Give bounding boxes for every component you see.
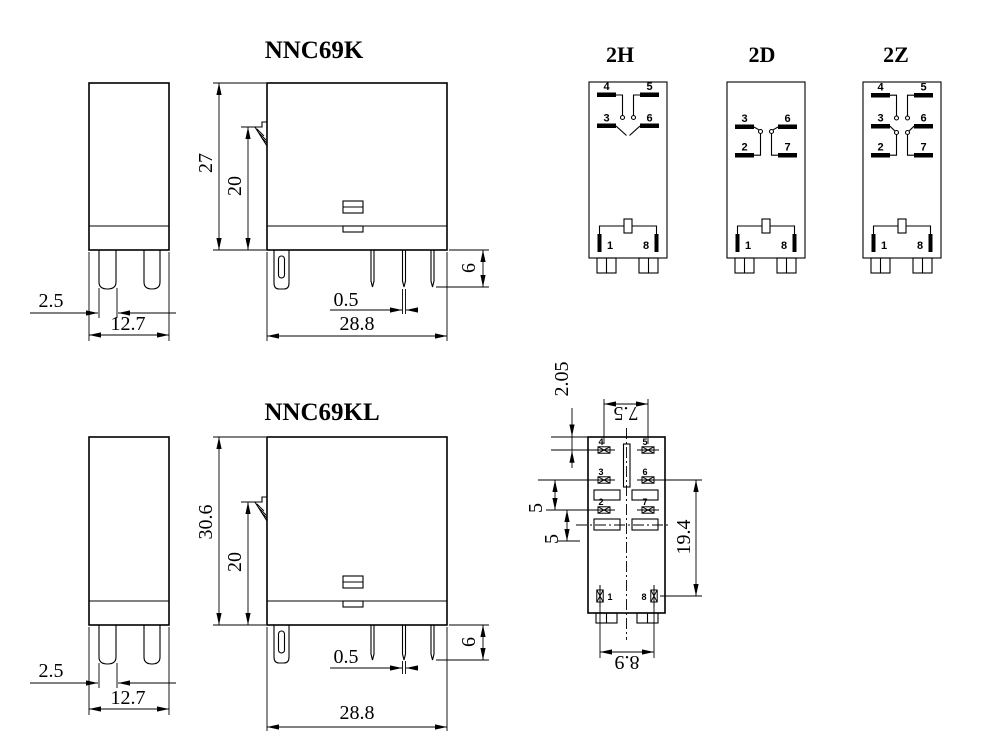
wiring-title-2h: 2H	[606, 42, 634, 67]
dim-top-row-pitch: 7.5	[614, 402, 639, 424]
dim-side-width-kl: 12.7	[111, 687, 146, 709]
dim-pin-length-k: 6	[458, 263, 480, 273]
pin-label: 6	[784, 113, 790, 125]
pin-label: 5	[920, 82, 926, 94]
pin-label: 6	[642, 467, 647, 477]
wiring-title-2z: 2Z	[883, 42, 909, 67]
pin-label: 4	[603, 81, 610, 93]
dim-row-gap-b: 5	[541, 534, 563, 544]
pin-label: 7	[642, 497, 647, 507]
pin-label: 3	[598, 467, 603, 477]
pin-label: 1	[881, 240, 887, 252]
dim-total-height-kl: 30.6	[195, 505, 217, 540]
pin-label: 3	[741, 113, 747, 125]
dim-pin-thickness-kl: 0.5	[334, 646, 359, 668]
pin-label: 8	[641, 592, 646, 602]
drawing-canvas: 2.5 12.7 NNC69K 27 20 6	[0, 0, 1007, 733]
pin-label: 2	[598, 497, 603, 507]
base-notch	[343, 226, 363, 232]
pin-label: 3	[603, 113, 609, 125]
coil-symbol	[898, 219, 906, 233]
dim-total-height-k: 27	[195, 153, 217, 173]
mounting-tab	[255, 497, 267, 521]
pin-label: 8	[917, 240, 923, 252]
dim-front-width-kl: 28.8	[340, 702, 375, 724]
dim-front-width-k: 28.8	[340, 313, 375, 335]
pin-label: 6	[920, 113, 926, 125]
wiring-diagram-2h: 2H 4 5 3 6 1 8	[589, 42, 667, 273]
dim-body-height-kl: 20	[224, 552, 246, 572]
dim-pin-thickness-k: 0.5	[334, 289, 359, 311]
model-title-nnc69kl: NNC69KL	[264, 399, 379, 426]
coil-symbol	[624, 219, 632, 233]
pin-label: 8	[643, 240, 649, 252]
dim-contact-field-height: 19.4	[673, 520, 695, 555]
dim-pin-width-k: 2.5	[39, 290, 64, 312]
nnc69k-side-view: 2.5 12.7	[30, 83, 176, 341]
pin-label: 5	[646, 81, 652, 93]
pin-label: 4	[877, 82, 884, 94]
coil-symbol	[762, 219, 770, 233]
pin-label: 1	[607, 592, 612, 602]
pin-label: 1	[745, 240, 751, 252]
nnc69kl-side-view: 2.5 12.7	[30, 437, 176, 715]
pin-label: 6	[646, 113, 652, 125]
pin-label: 1	[607, 240, 613, 252]
wiring-diagram-2z: 2Z 4 5 3 6 2 7 1 8	[863, 42, 941, 273]
relay-dimension-drawing: 2.5 12.7 NNC69K 27 20 6	[0, 0, 1007, 733]
mounting-tab	[255, 122, 267, 146]
pin-label: 7	[784, 142, 790, 154]
pin-label: 7	[920, 142, 926, 154]
dim-coil-row-pitch: 8.9	[615, 651, 640, 673]
dim-side-width-k: 12.7	[111, 313, 146, 335]
pin-label: 3	[877, 113, 883, 125]
dim-top-edge-to-first-row: 2.05	[551, 362, 573, 397]
dim-body-height-k: 20	[224, 176, 246, 196]
pin-label: 2	[877, 142, 883, 154]
nnc69kl-front-view: NNC69KL 30.6 20 6 0.5	[195, 399, 489, 731]
wiring-diagram-2d: 2D 3 6 2 7 1 8	[727, 42, 805, 273]
pin-label: 2	[741, 142, 747, 154]
nnc69k-front-view: NNC69K 27 20 6 0.5 2	[195, 37, 489, 341]
wiring-title-2d: 2D	[749, 42, 776, 67]
bottom-pin-layout-view: 4 5 3 6 2 7 1 8 7.5 2.05 5 5 19.4	[525, 362, 702, 674]
base-notch	[343, 601, 363, 607]
dim-pin-width-kl: 2.5	[39, 660, 64, 682]
dim-row-gap-a: 5	[525, 503, 547, 513]
model-title-nnc69k: NNC69K	[265, 37, 364, 64]
pin-label: 8	[781, 240, 787, 252]
dim-pin-length-kl: 6	[458, 637, 480, 647]
pin-label: 4	[598, 437, 603, 447]
pin-label: 5	[642, 437, 647, 447]
